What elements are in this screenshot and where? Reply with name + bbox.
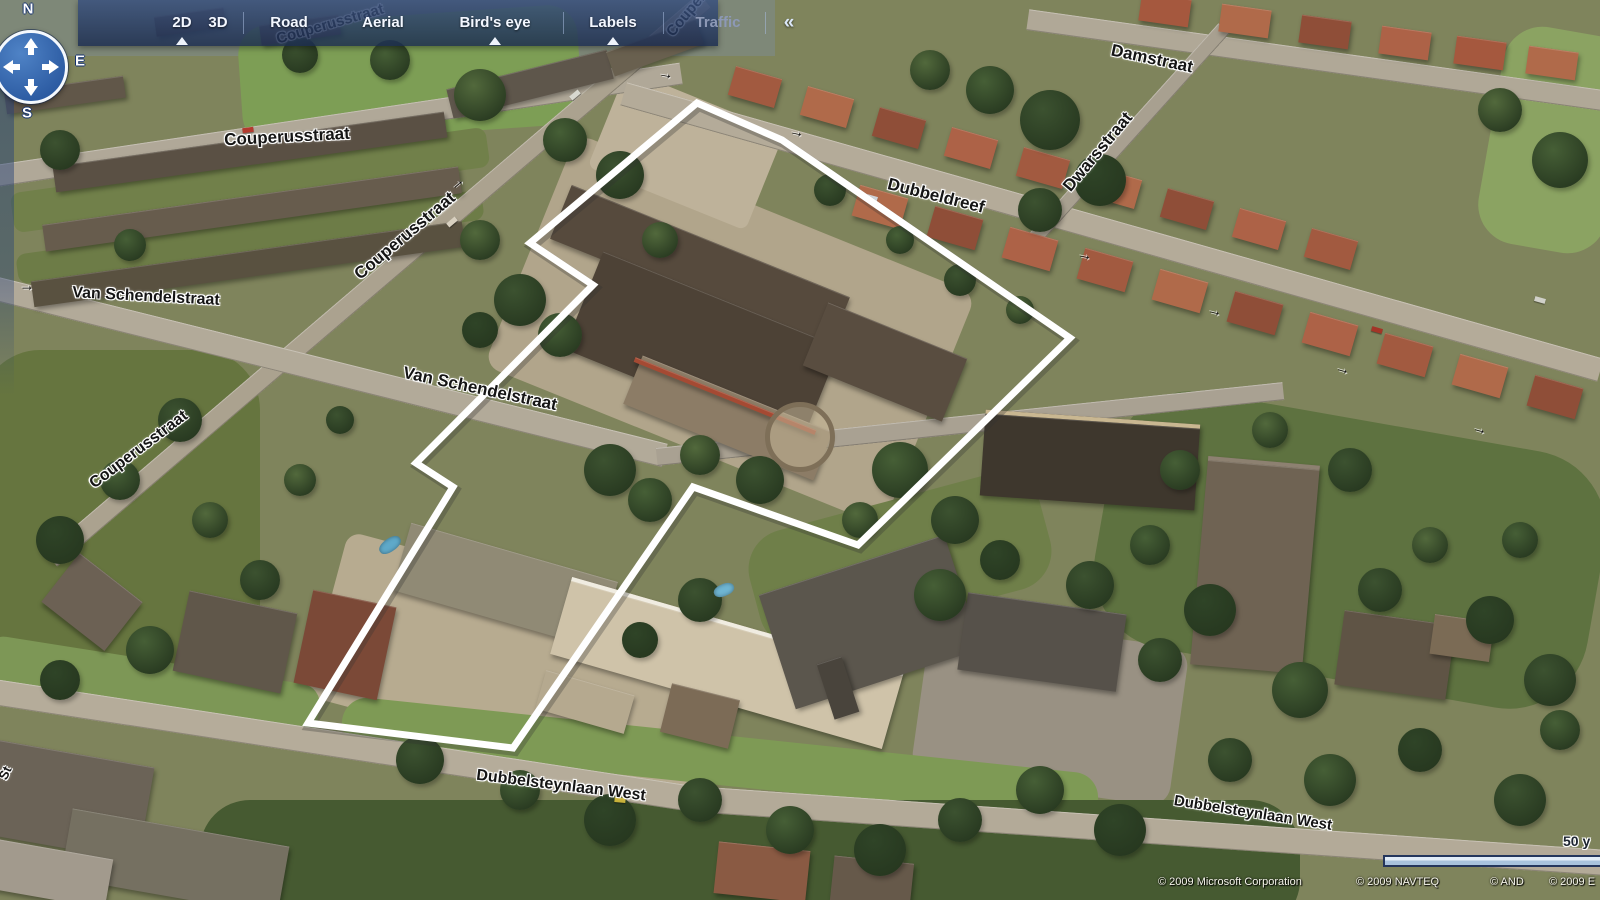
- collapse-toolbar-button[interactable]: «: [784, 12, 795, 34]
- one-way-arrow-icon: →: [1206, 301, 1225, 321]
- active-indicator-caret-icon: [489, 37, 501, 45]
- map-building: [1160, 188, 1214, 230]
- map-tree: [1328, 448, 1372, 492]
- map-tree: [40, 660, 80, 700]
- pan-up-arrow-icon[interactable]: [24, 38, 38, 48]
- map-tree: [1272, 662, 1328, 718]
- map-tree: [460, 220, 500, 260]
- attribution-text: © 2009 E: [1549, 876, 1595, 888]
- map-tree: [1304, 754, 1356, 806]
- map-building: [872, 107, 926, 149]
- map-tree: [1478, 88, 1522, 132]
- map-tree: [1020, 90, 1080, 150]
- map-tree: [454, 69, 506, 121]
- map-tree: [678, 578, 722, 622]
- map-swimming-pool: [712, 581, 736, 600]
- map-building: [1152, 269, 1209, 314]
- compass-east-label: E: [75, 53, 85, 70]
- toolbar-divider: [765, 12, 766, 34]
- active-indicator-caret-icon: [607, 37, 619, 45]
- map-tree: [1502, 522, 1538, 558]
- map-building: [1377, 333, 1434, 378]
- map-tree: [114, 229, 146, 261]
- map-tree: [543, 118, 587, 162]
- map-tree: [36, 516, 84, 564]
- map-tree: [938, 798, 982, 842]
- map-tree: [914, 569, 966, 621]
- one-way-arrow-icon: →: [1470, 419, 1489, 439]
- map-building: [1002, 227, 1059, 272]
- map-tree: [1006, 296, 1034, 324]
- map-building: [1302, 312, 1359, 357]
- active-indicator-caret-icon: [176, 37, 188, 45]
- map-tree: [886, 226, 914, 254]
- pan-left-arrow-stem[interactable]: [13, 64, 20, 70]
- map-tree: [680, 435, 720, 475]
- pan-down-arrow-stem[interactable]: [28, 79, 34, 86]
- map-building: [800, 86, 854, 128]
- map-building: [944, 127, 998, 169]
- map-tree: [910, 50, 950, 90]
- map-tree: [1524, 654, 1576, 706]
- map-building: [1227, 291, 1284, 336]
- attribution-text: © 2009 Microsoft Corporation: [1158, 876, 1302, 888]
- pan-left-arrow-icon[interactable]: [3, 60, 13, 74]
- map-tree: [462, 312, 498, 348]
- scale-label: 50 y: [1563, 833, 1590, 849]
- toolbar-divider: [563, 12, 564, 34]
- toolbar-item-aerial[interactable]: Aerial: [362, 14, 404, 31]
- map-tree: [628, 478, 672, 522]
- map-tree: [1018, 188, 1062, 232]
- map-building: [1298, 15, 1351, 50]
- map-building: [1190, 456, 1320, 674]
- compass-rose: N E S: [0, 0, 110, 130]
- compass-north-label: N: [23, 1, 34, 18]
- map-building: [1378, 26, 1431, 61]
- map-tree: [1358, 568, 1402, 612]
- map-tree: [766, 806, 814, 854]
- map-tree: [944, 264, 976, 296]
- map-tree: [596, 151, 644, 199]
- toolbar-item-traffic[interactable]: Traffic: [695, 14, 740, 31]
- attribution-text: © 2009 NAVTEQ: [1356, 876, 1439, 888]
- one-way-arrow-icon: →: [1333, 359, 1352, 379]
- map-tree: [1160, 450, 1200, 490]
- map-tree: [126, 626, 174, 674]
- attribution-text: © AND: [1490, 876, 1524, 888]
- map-building: [1453, 36, 1506, 71]
- map-tree: [1130, 525, 1170, 565]
- map-tree: [1094, 804, 1146, 856]
- map-building: [1452, 354, 1509, 399]
- toolbar-item-road[interactable]: Road: [270, 14, 308, 31]
- map-tree: [842, 502, 878, 538]
- map-tree: [814, 174, 846, 206]
- map-tree: [396, 736, 444, 784]
- map-tree: [1532, 132, 1588, 188]
- compass-south-label: S: [22, 105, 32, 122]
- map-building: [1527, 375, 1584, 420]
- pan-right-arrow-stem[interactable]: [42, 64, 49, 70]
- map-building: [728, 66, 782, 108]
- map-tree: [1208, 738, 1252, 782]
- scale-bar: [1383, 855, 1600, 867]
- map-tree: [1466, 596, 1514, 644]
- map-tree: [1252, 412, 1288, 448]
- map-tree: [1016, 766, 1064, 814]
- toolbar-divider: [663, 12, 664, 34]
- map-tree: [854, 824, 906, 876]
- map-tree: [584, 444, 636, 496]
- pan-up-arrow-stem[interactable]: [28, 48, 34, 55]
- map-toolbar: 2D3DRoadAerialBird's eyeLabelsTraffic «: [78, 0, 718, 46]
- map-tree: [1398, 728, 1442, 772]
- toolbar-divider: [243, 12, 244, 34]
- map-playground-circle: [765, 402, 835, 472]
- map-tree: [622, 622, 658, 658]
- map-tree: [192, 502, 228, 538]
- map-tree: [1138, 638, 1182, 682]
- pan-down-arrow-icon[interactable]: [24, 86, 38, 96]
- map-tree: [284, 464, 316, 496]
- map-tree: [1184, 584, 1236, 636]
- map-tree: [240, 560, 280, 600]
- map-tree: [1412, 527, 1448, 563]
- map-tree: [40, 130, 80, 170]
- map-building: [1304, 228, 1358, 270]
- map-tree: [1540, 710, 1580, 750]
- map-tree: [1066, 561, 1114, 609]
- map-tree: [494, 274, 546, 326]
- toolbar-item-labels[interactable]: Labels: [589, 14, 637, 31]
- map-tree: [538, 313, 582, 357]
- map-tree: [370, 40, 410, 80]
- map-tree: [326, 406, 354, 434]
- map-tree: [980, 540, 1020, 580]
- map-car: [1534, 296, 1546, 304]
- one-way-arrow-icon: →: [20, 278, 35, 295]
- map-tree: [966, 66, 1014, 114]
- map-tree: [678, 778, 722, 822]
- map-tree: [642, 222, 678, 258]
- map-tree: [872, 442, 928, 498]
- toolbar-item-2d[interactable]: 2D: [172, 14, 191, 31]
- map-building: [1138, 0, 1191, 27]
- toolbar-item-bird-s-eye[interactable]: Bird's eye: [459, 14, 530, 31]
- map-car: [1371, 326, 1383, 334]
- toolbar-item-3d[interactable]: 3D: [208, 14, 227, 31]
- map-tree: [1494, 774, 1546, 826]
- pan-right-arrow-icon[interactable]: [49, 60, 59, 74]
- map-tree: [931, 496, 979, 544]
- map-viewport[interactable]: CouperusstraatCouperusstraatCouperusstra…: [0, 0, 1600, 900]
- map-building: [1232, 208, 1286, 250]
- one-way-arrow-icon: →: [657, 64, 675, 83]
